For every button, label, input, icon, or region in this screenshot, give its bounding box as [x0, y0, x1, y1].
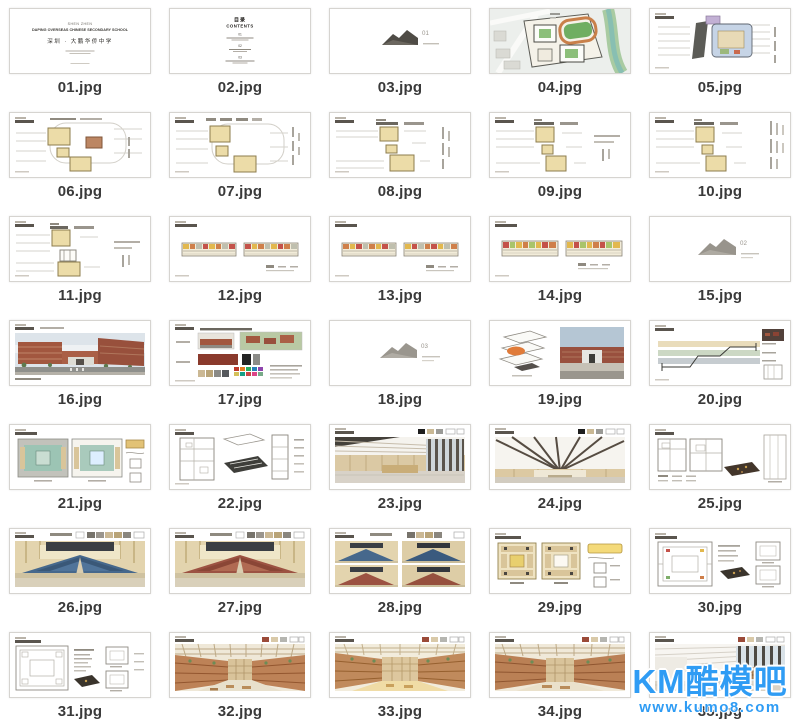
interior-render-graphic	[330, 425, 470, 489]
file-item[interactable]: 25.jpg	[640, 416, 800, 520]
file-item[interactable]: 11.jpg	[0, 208, 160, 312]
file-name[interactable]: 26.jpg	[58, 599, 103, 616]
section-icon-graphic	[330, 9, 470, 73]
file-item[interactable]: 28.jpg	[320, 520, 480, 624]
materials-board-graphic	[170, 321, 310, 385]
file-thumbnail[interactable]: 02	[649, 216, 791, 282]
file-thumbnail[interactable]	[489, 528, 631, 594]
file-thumbnail[interactable]	[169, 528, 311, 594]
file-thumbnail[interactable]: 03	[329, 320, 471, 386]
file-item[interactable]: 06.jpg	[0, 104, 160, 208]
section-number: 03	[421, 343, 428, 350]
file-name[interactable]: 08.jpg	[378, 183, 423, 200]
file-thumbnail[interactable]	[169, 424, 311, 490]
contents-title-cn: 目录	[234, 16, 246, 24]
file-thumbnail[interactable]: SHEN ZHEN DAPING OVERSEAS CHINESE SECOND…	[9, 8, 151, 74]
file-name[interactable]: 22.jpg	[218, 495, 263, 512]
section-number: 02	[740, 240, 747, 247]
file-thumbnail[interactable]: 目录 CONTENTS 01 02 03	[169, 8, 311, 74]
watermark: KM酷模吧 www.kumo8.com	[622, 665, 798, 716]
file-thumbnail[interactable]	[329, 528, 471, 594]
file-name[interactable]: 12.jpg	[218, 287, 263, 304]
file-item[interactable]: 02 15.jpg	[640, 208, 800, 312]
floor-plan-graphic	[330, 113, 470, 177]
atrium-render-graphic	[170, 633, 310, 697]
cover-city: SHEN ZHEN	[68, 23, 93, 27]
file-name[interactable]: 02.jpg	[218, 79, 263, 96]
file-item[interactable]: 09.jpg	[480, 104, 640, 208]
file-item[interactable]: 23.jpg	[320, 416, 480, 520]
cover-title-cn: 深圳 · 大鹏华侨中学	[47, 37, 112, 45]
file-item[interactable]: 21.jpg	[0, 416, 160, 520]
contents-item-num: 02	[238, 45, 242, 49]
file-item[interactable]: 31.jpg	[0, 624, 160, 728]
file-thumbnail[interactable]: 01	[329, 8, 471, 74]
file-thumbnail[interactable]	[329, 216, 471, 282]
strip-plan-graphic	[330, 217, 470, 281]
file-thumbnail[interactable]	[489, 632, 631, 698]
file-item[interactable]: 30.jpg	[640, 520, 800, 624]
floor-plan-graphic	[490, 113, 630, 177]
file-name[interactable]: 14.jpg	[538, 287, 583, 304]
contents-item-num: 01	[238, 33, 242, 37]
file-item[interactable]: 目录 CONTENTS 01 02 03 02.jpg	[160, 0, 320, 104]
file-name[interactable]: 29.jpg	[538, 599, 583, 616]
file-thumbnail[interactable]	[649, 528, 791, 594]
line-plan-graphic	[170, 425, 310, 489]
file-item[interactable]: 19.jpg	[480, 312, 640, 416]
axon-render-graphic	[490, 321, 630, 385]
file-thumbnail[interactable]	[489, 8, 631, 74]
zoning-plan-graphic	[650, 9, 790, 73]
floor-plan-graphic	[10, 217, 150, 281]
contents-item-bar	[233, 63, 248, 64]
atrium-render-graphic	[330, 633, 470, 697]
file-name[interactable]: 16.jpg	[58, 391, 103, 408]
file-name[interactable]: 15.jpg	[698, 287, 743, 304]
contents-title-en: CONTENTS	[226, 24, 253, 29]
file-name[interactable]: 20.jpg	[698, 391, 743, 408]
file-item[interactable]: SHEN ZHEN DAPING OVERSEAS CHINESE SECOND…	[0, 0, 160, 104]
watermark-brand: KM酷模吧	[622, 665, 798, 699]
file-thumbnail[interactable]	[649, 424, 791, 490]
file-item[interactable]: 27.jpg	[160, 520, 320, 624]
file-item[interactable]: 01 03.jpg	[320, 0, 480, 104]
file-thumbnail[interactable]	[9, 320, 151, 386]
contents-item-bar	[233, 51, 247, 52]
contents-item-bar	[229, 49, 251, 50]
file-thumbnail[interactable]	[169, 632, 311, 698]
colored-plan-graphic	[490, 529, 630, 593]
line-plan-graphic	[10, 633, 150, 697]
file-thumbnail[interactable]	[9, 528, 151, 594]
atrium-render-graphic	[490, 633, 630, 697]
section-icon-graphic	[330, 321, 470, 385]
file-thumbnail[interactable]	[169, 216, 311, 282]
colored-plan-graphic	[10, 425, 150, 489]
file-name[interactable]: 32.jpg	[218, 703, 263, 720]
contents-slide: 目录 CONTENTS 01 02 03	[170, 9, 310, 73]
file-name[interactable]: 13.jpg	[378, 287, 423, 304]
file-thumbnail[interactable]	[9, 112, 151, 178]
cover-slide: SHEN ZHEN DAPING OVERSEAS CHINESE SECOND…	[10, 9, 150, 73]
cover-subtext-bar	[70, 53, 91, 54]
file-thumbnail[interactable]	[169, 112, 311, 178]
file-item[interactable]: 34.jpg	[480, 624, 640, 728]
file-thumbnail[interactable]	[489, 320, 631, 386]
watermark-url: www.kumo8.com	[622, 699, 798, 716]
file-item[interactable]: 29.jpg	[480, 520, 640, 624]
file-name[interactable]: 33.jpg	[378, 703, 423, 720]
file-item[interactable]: 07.jpg	[160, 104, 320, 208]
strip-plan-graphic	[170, 217, 310, 281]
file-name[interactable]: 06.jpg	[58, 183, 103, 200]
floor-plan-graphic	[170, 113, 310, 177]
auditorium-render-graphic	[10, 529, 150, 593]
contents-item-bar	[232, 40, 249, 41]
file-name[interactable]: 01.jpg	[58, 79, 103, 96]
floor-plan-graphic	[10, 113, 150, 177]
file-name[interactable]: 11.jpg	[58, 287, 102, 304]
line-plan-graphic	[650, 425, 790, 489]
file-thumbnail[interactable]	[329, 632, 471, 698]
file-name[interactable]: 07.jpg	[218, 183, 263, 200]
contents-item-bar	[227, 38, 254, 39]
file-item[interactable]: 13.jpg	[320, 208, 480, 312]
file-item[interactable]: 24.jpg	[480, 416, 640, 520]
contents-item-bar	[226, 61, 255, 62]
file-item[interactable]: 17.jpg	[160, 312, 320, 416]
file-item[interactable]: 08.jpg	[320, 104, 480, 208]
file-name[interactable]: 19.jpg	[538, 391, 583, 408]
section-number: 01	[422, 30, 429, 37]
file-thumbnail[interactable]	[649, 112, 791, 178]
interior-render-graphic	[490, 425, 630, 489]
line-plan-graphic	[650, 529, 790, 593]
file-thumbnail[interactable]	[489, 216, 631, 282]
auditorium-grid-graphic	[330, 529, 470, 593]
file-name[interactable]: 30.jpg	[698, 599, 743, 616]
file-name[interactable]: 17.jpg	[218, 391, 263, 408]
file-thumbnail[interactable]	[329, 112, 471, 178]
section-drawing-graphic	[650, 321, 790, 385]
file-thumbnail[interactable]	[489, 112, 631, 178]
file-name[interactable]: 03.jpg	[378, 79, 423, 96]
file-name[interactable]: 23.jpg	[378, 495, 423, 512]
file-item[interactable]: 22.jpg	[160, 416, 320, 520]
site-plan-graphic	[490, 9, 630, 73]
file-thumbnail[interactable]	[649, 8, 791, 74]
exterior-render-graphic	[10, 321, 150, 385]
auditorium-render-graphic	[170, 529, 310, 593]
file-name[interactable]: 18.jpg	[378, 391, 423, 408]
file-thumbnail[interactable]	[329, 424, 471, 490]
file-thumbnail[interactable]	[649, 320, 791, 386]
floor-plan-graphic	[650, 113, 790, 177]
file-item[interactable]: 05.jpg	[640, 0, 800, 104]
file-item[interactable]: 33.jpg	[320, 624, 480, 728]
file-item[interactable]: 03 18.jpg	[320, 312, 480, 416]
file-name[interactable]: 28.jpg	[378, 599, 423, 616]
file-name[interactable]: 31.jpg	[58, 703, 103, 720]
file-item[interactable]: 12.jpg	[160, 208, 320, 312]
cover-subtext-bar	[66, 51, 95, 52]
file-item[interactable]: 32.jpg	[160, 624, 320, 728]
file-item[interactable]: 10.jpg	[640, 104, 800, 208]
file-name[interactable]: 05.jpg	[698, 79, 743, 96]
cover-footer-bar	[71, 63, 90, 64]
file-item[interactable]: 20.jpg	[640, 312, 800, 416]
file-item[interactable]: 04.jpg	[480, 0, 640, 104]
contents-item-num: 03	[238, 56, 242, 60]
file-thumbnail[interactable]	[9, 632, 151, 698]
file-name[interactable]: 21.jpg	[58, 495, 103, 512]
thumbnail-grid: SHEN ZHEN DAPING OVERSEAS CHINESE SECOND…	[0, 0, 800, 728]
file-item[interactable]: 16.jpg	[0, 312, 160, 416]
file-item[interactable]: 14.jpg	[480, 208, 640, 312]
file-item[interactable]: 26.jpg	[0, 520, 160, 624]
file-name[interactable]: 24.jpg	[538, 495, 583, 512]
file-name[interactable]: 09.jpg	[538, 183, 583, 200]
file-name[interactable]: 10.jpg	[698, 183, 743, 200]
file-thumbnail[interactable]	[489, 424, 631, 490]
section-icon-graphic	[650, 217, 790, 281]
file-name[interactable]: 34.jpg	[538, 703, 583, 720]
file-name[interactable]: 27.jpg	[218, 599, 263, 616]
file-thumbnail[interactable]	[9, 424, 151, 490]
file-thumbnail[interactable]	[169, 320, 311, 386]
strip-plan-graphic	[490, 217, 630, 281]
file-name[interactable]: 25.jpg	[698, 495, 743, 512]
file-thumbnail[interactable]	[9, 216, 151, 282]
cover-title-en: DAPING OVERSEAS CHINESE SECONDARY SCHOOL	[32, 28, 128, 33]
file-name[interactable]: 04.jpg	[538, 79, 583, 96]
